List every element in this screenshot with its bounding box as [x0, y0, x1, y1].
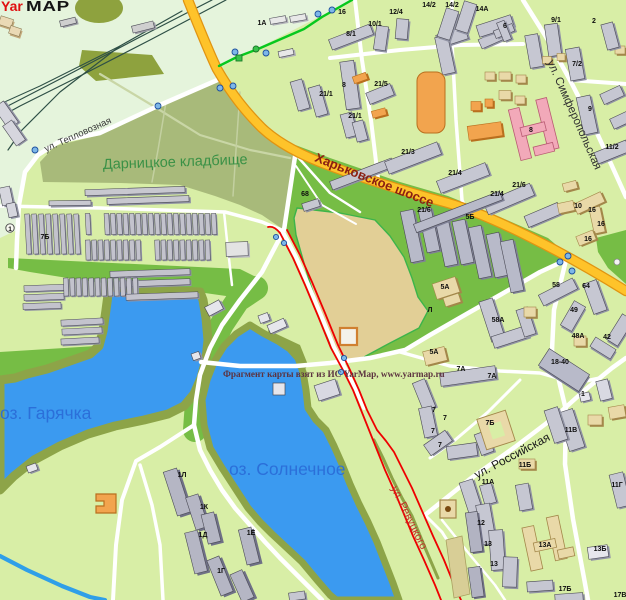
svg-text:1К: 1К — [200, 504, 209, 511]
svg-text:58А: 58А — [492, 317, 505, 324]
svg-text:1: 1 — [8, 226, 12, 233]
svg-text:6: 6 — [503, 23, 507, 30]
svg-text:13: 13 — [490, 561, 498, 568]
svg-text:16: 16 — [338, 9, 346, 16]
svg-text:1Д: 1Д — [199, 532, 208, 539]
svg-text:Yar: Yar — [1, 0, 23, 14]
svg-text:21/6: 21/6 — [417, 207, 431, 214]
svg-text:21/4: 21/4 — [448, 170, 462, 177]
svg-text:5Б: 5Б — [466, 214, 475, 221]
svg-text:8: 8 — [529, 127, 533, 134]
svg-text:48А: 48А — [572, 333, 585, 340]
svg-text:7/2: 7/2 — [572, 61, 582, 68]
svg-text:9: 9 — [588, 106, 592, 113]
svg-text:7А: 7А — [488, 373, 497, 380]
svg-text:17Б: 17Б — [559, 586, 572, 593]
svg-text:64: 64 — [582, 283, 590, 290]
svg-text:21/6: 21/6 — [512, 182, 526, 189]
svg-text:оз. Гарячка: оз. Гарячка — [0, 403, 92, 423]
svg-text:2: 2 — [592, 18, 596, 25]
svg-text:7Б: 7Б — [486, 420, 495, 427]
svg-text:16: 16 — [588, 207, 596, 214]
svg-text:21/1: 21/1 — [348, 113, 362, 120]
svg-text:7А: 7А — [457, 366, 466, 373]
svg-text:11В: 11В — [565, 427, 577, 434]
svg-text:11Б: 11Б — [519, 462, 531, 469]
svg-text:16: 16 — [597, 221, 605, 228]
svg-text:7: 7 — [443, 415, 447, 422]
svg-text:49: 49 — [570, 307, 578, 314]
svg-text:13Б: 13Б — [594, 546, 607, 553]
svg-text:21/5: 21/5 — [374, 81, 388, 88]
svg-text:16: 16 — [584, 236, 592, 243]
svg-text:11/2: 11/2 — [605, 144, 618, 151]
svg-text:5А: 5А — [430, 349, 439, 356]
svg-text:10: 10 — [574, 203, 582, 210]
svg-text:5А: 5А — [441, 284, 450, 291]
svg-text:68: 68 — [301, 191, 309, 198]
svg-text:7: 7 — [432, 407, 436, 414]
svg-text:12: 12 — [477, 520, 485, 527]
svg-text:13: 13 — [484, 541, 492, 548]
svg-text:9/1: 9/1 — [551, 17, 561, 24]
svg-text:1А: 1А — [258, 20, 267, 27]
svg-text:13А: 13А — [539, 542, 552, 549]
svg-text:1: 1 — [581, 391, 585, 398]
svg-text:18-40: 18-40 — [551, 359, 569, 366]
svg-text:11А: 11А — [482, 479, 494, 486]
svg-text:1Л: 1Л — [178, 472, 187, 479]
svg-text:Л: Л — [428, 307, 433, 314]
svg-text:21/1: 21/1 — [319, 91, 333, 98]
svg-text:Фрагмент карты взят из ИС YarM: Фрагмент карты взят из ИС YarMap, www.ya… — [223, 369, 445, 379]
svg-text:8: 8 — [342, 82, 346, 89]
svg-text:12/4: 12/4 — [389, 9, 403, 16]
svg-text:1Е: 1Е — [247, 530, 256, 537]
svg-text:58: 58 — [552, 282, 560, 289]
svg-text:8/1: 8/1 — [346, 31, 356, 38]
svg-text:21/4: 21/4 — [490, 191, 504, 198]
svg-text:МАР: МАР — [26, 0, 70, 14]
svg-text:7Б: 7Б — [41, 234, 50, 241]
svg-text:1Г: 1Г — [217, 568, 225, 575]
svg-text:14/2: 14/2 — [445, 2, 459, 9]
svg-text:21/3: 21/3 — [401, 149, 415, 156]
svg-text:17В: 17В — [614, 592, 626, 599]
svg-text:14/2: 14/2 — [422, 2, 436, 9]
svg-text:7: 7 — [431, 428, 435, 435]
svg-text:7: 7 — [438, 442, 442, 449]
svg-text:11Г: 11Г — [611, 482, 622, 489]
svg-text:10/1: 10/1 — [368, 21, 382, 28]
svg-text:42: 42 — [603, 334, 611, 341]
svg-text:14А: 14А — [476, 6, 489, 13]
svg-text:оз. Солнечное: оз. Солнечное — [229, 459, 346, 479]
